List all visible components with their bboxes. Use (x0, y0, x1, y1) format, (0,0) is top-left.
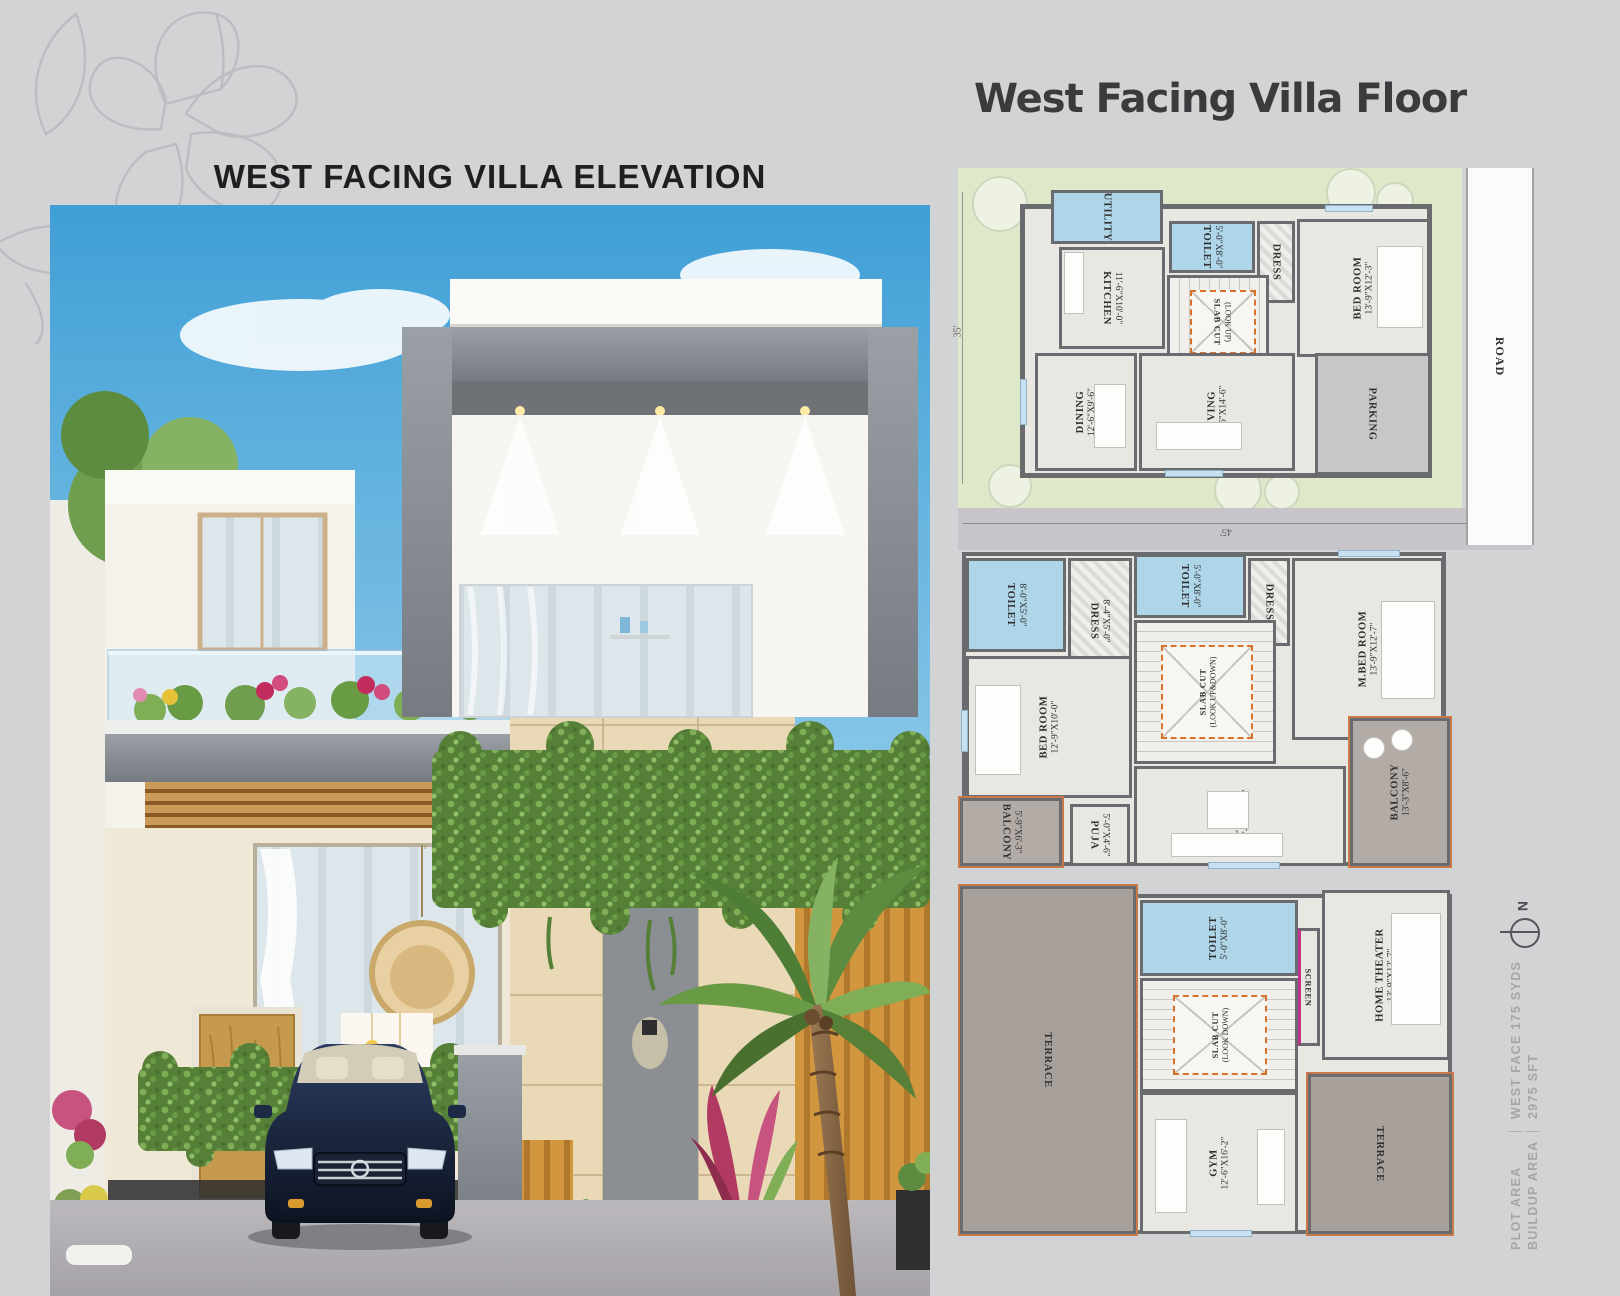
curb (66, 1245, 132, 1265)
lawn-tree (1264, 474, 1300, 510)
right-planter (896, 1152, 930, 1270)
terrace-1: TERRACE (960, 886, 1136, 1234)
window (1020, 379, 1027, 425)
dining-table (1094, 384, 1126, 448)
room-utility: UTILITY (1051, 190, 1163, 244)
plot-area-value: WEST FACE 175 SYDS (1509, 961, 1523, 1132)
ground-floor-building: UTILITY KITCHEN11'-6"X10'-0" TOILET5'-0"… (1020, 204, 1432, 478)
far-wall (50, 500, 108, 1296)
dimension-line (962, 192, 963, 484)
staircase: SLAB CUT(LOOK DOWN) (1140, 978, 1298, 1092)
plot-area-row: PLOT AREA WEST FACE 175 SYDS (1509, 950, 1523, 1250)
window (1338, 550, 1400, 557)
treadmill (1155, 1119, 1187, 1213)
projector-screen: SCREEN (1298, 928, 1320, 1046)
sofa (1171, 833, 1283, 857)
north-circle (1510, 918, 1540, 948)
buildup-area-row: BUILDUP AREA 2975 SFT (1526, 950, 1540, 1250)
bed (1377, 246, 1423, 328)
room-bedroom: BED ROOM12'-9"X10'-0" (966, 656, 1132, 798)
room-living: LIVING12'-6"X16'-2" (1134, 766, 1346, 866)
balcony-chair (1363, 737, 1385, 759)
floor-plan-title: West Facing Villa Floor (975, 76, 1465, 122)
first-floor-plan: TOILET8'-0"X5'-0" DRESS8'-4"X5'-0" TOILE… (958, 530, 1452, 868)
room-puja: PUJA5'-0"X4'-6" (1070, 804, 1130, 866)
area-info: PLOT AREA WEST FACE 175 SYDS BUILDUP ARE… (1501, 950, 1547, 1250)
north-arrow-icon: N (1496, 900, 1556, 952)
plot-width-dim: 35' (952, 326, 963, 338)
balcony-chair (1391, 729, 1413, 751)
wall-lamp (642, 1020, 657, 1035)
room-kitchen: KITCHEN11'-6"X10'-0" (1059, 247, 1165, 349)
window (1208, 862, 1280, 869)
sofa (1156, 422, 1242, 450)
dimension-line (962, 523, 1526, 524)
terrace-2: TERRACE (1308, 1074, 1452, 1234)
second-floor-plan: TERRACE TOILET5'-0"X8'-0" SCREEN HOME TH… (960, 878, 1452, 1234)
ground-floor-plan: 35' UTILITY KITCHEN11'-6"X10'-0" TOILET5… (958, 168, 1462, 508)
room-dining: DINING12'-6"X9'-6" (1035, 353, 1137, 471)
room-home-theater: HOME THEATER13'-9"X12'-7" (1322, 890, 1450, 1060)
window (1325, 205, 1373, 212)
room-parking: PARKING (1315, 353, 1431, 475)
room-bedroom: BED ROOM13'-9"X12'-3" (1297, 219, 1430, 357)
north-label: N (1515, 901, 1531, 911)
bed (975, 685, 1021, 775)
floor-plan-title-text: West Facing Villa Floor (974, 76, 1466, 122)
upper-frame (402, 279, 918, 717)
room-toilet-2: TOILET5'-0"X8'-0" (1134, 554, 1246, 618)
room-toilet-1: TOILET8'-0"X5'-0" (966, 558, 1066, 652)
room-gym: GYM12'-6"X16'-2" (1140, 1092, 1298, 1234)
road (50, 1200, 930, 1296)
window (961, 710, 968, 752)
balcony-2: BALCONY13'-3"X8'-6" (1350, 718, 1450, 866)
slab-cut: SLAB CUT(LOOK UP&DOWN) (1161, 645, 1253, 739)
room-toilet: TOILET5'-0"X8'-0" (1169, 221, 1255, 273)
slab-cut: SLAB CUT(LOOK UP) (1190, 290, 1256, 354)
bed (1381, 601, 1435, 699)
plot-area-label: PLOT AREA (1509, 1132, 1523, 1250)
staircase: SLAB CUT(LOOK UP&DOWN) (1134, 620, 1276, 764)
room-toilet: TOILET5'-0"X8'-0" (1140, 900, 1298, 976)
window (1190, 1230, 1252, 1237)
balcony-1: BALCONY5'-9"X6'-3" (960, 798, 1062, 866)
villa-elevation-render (50, 205, 930, 1296)
buildup-area-value: 2975 SFT (1526, 1054, 1540, 1132)
buildup-area-label: BUILDUP AREA (1526, 1132, 1540, 1250)
elevation-heading: WEST FACING VILLA ELEVATION (50, 158, 930, 196)
curtain-window (460, 585, 752, 717)
road: ROAD (1466, 168, 1534, 545)
brochure-page: WEST FACING VILLA ELEVATION (0, 0, 1620, 1296)
room-master-bedroom: M.BED ROOM13'-9"X12'-7" (1292, 558, 1444, 740)
exercise-bike (1257, 1129, 1285, 1205)
slab-cut: SLAB CUT(LOOK DOWN) (1173, 995, 1267, 1075)
window (1165, 470, 1223, 477)
theater-sofa (1391, 913, 1441, 1025)
kitchen-counter (1064, 252, 1084, 314)
coffee-table (1207, 791, 1249, 829)
room-living: LIVING12'-6"X14'-6" (1139, 353, 1295, 471)
